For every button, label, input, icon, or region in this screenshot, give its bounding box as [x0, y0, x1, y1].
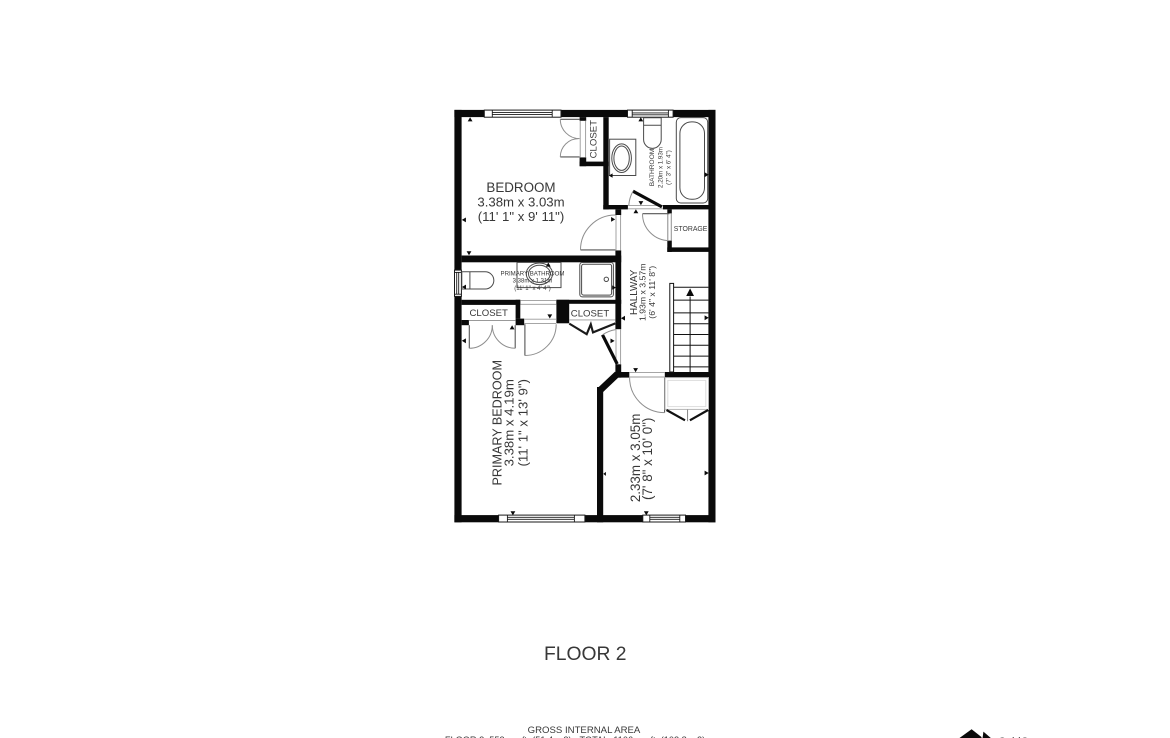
svg-text:3.38m x 3.03m: 3.38m x 3.03m [477, 195, 564, 210]
svg-text:BEDROOM: BEDROOM [486, 180, 555, 195]
svg-text:CLOSET: CLOSET [589, 120, 600, 159]
svg-text:(11' 1" x 4' 4"): (11' 1" x 4' 4") [514, 286, 550, 292]
svg-text:(7' 3" x 6' 4"): (7' 3" x 6' 4") [665, 150, 672, 185]
svg-text:BATHROOM: BATHROOM [649, 149, 656, 187]
svg-text:CLOSET: CLOSET [470, 308, 509, 319]
svg-text:3.38m x 1.31m: 3.38m x 1.31m [513, 279, 553, 285]
svg-text:2.20m x 1.93m: 2.20m x 1.93m [657, 147, 664, 188]
svg-text:(11' 1" x 9' 11"): (11' 1" x 9' 11") [478, 209, 564, 224]
svg-text:CLOSET: CLOSET [571, 308, 610, 319]
svg-text:STORAGE: STORAGE [674, 226, 708, 233]
svg-text:(11' 1" x 13' 9"): (11' 1" x 13' 9") [516, 379, 531, 466]
svg-text:PRIMARY BATHROOM: PRIMARY BATHROOM [501, 270, 565, 277]
svg-text:(7' 8" x 10' 0"): (7' 8" x 10' 0") [640, 418, 655, 500]
svg-text:1.93m x 3.57m: 1.93m x 3.57m [637, 264, 647, 321]
svg-text:(6' 4" x 11' 8"): (6' 4" x 11' 8") [647, 266, 657, 319]
svg-text:FLOOR 2: FLOOR 2 [544, 644, 627, 665]
svg-text:3.38m x 4.19m: 3.38m x 4.19m [502, 379, 517, 466]
